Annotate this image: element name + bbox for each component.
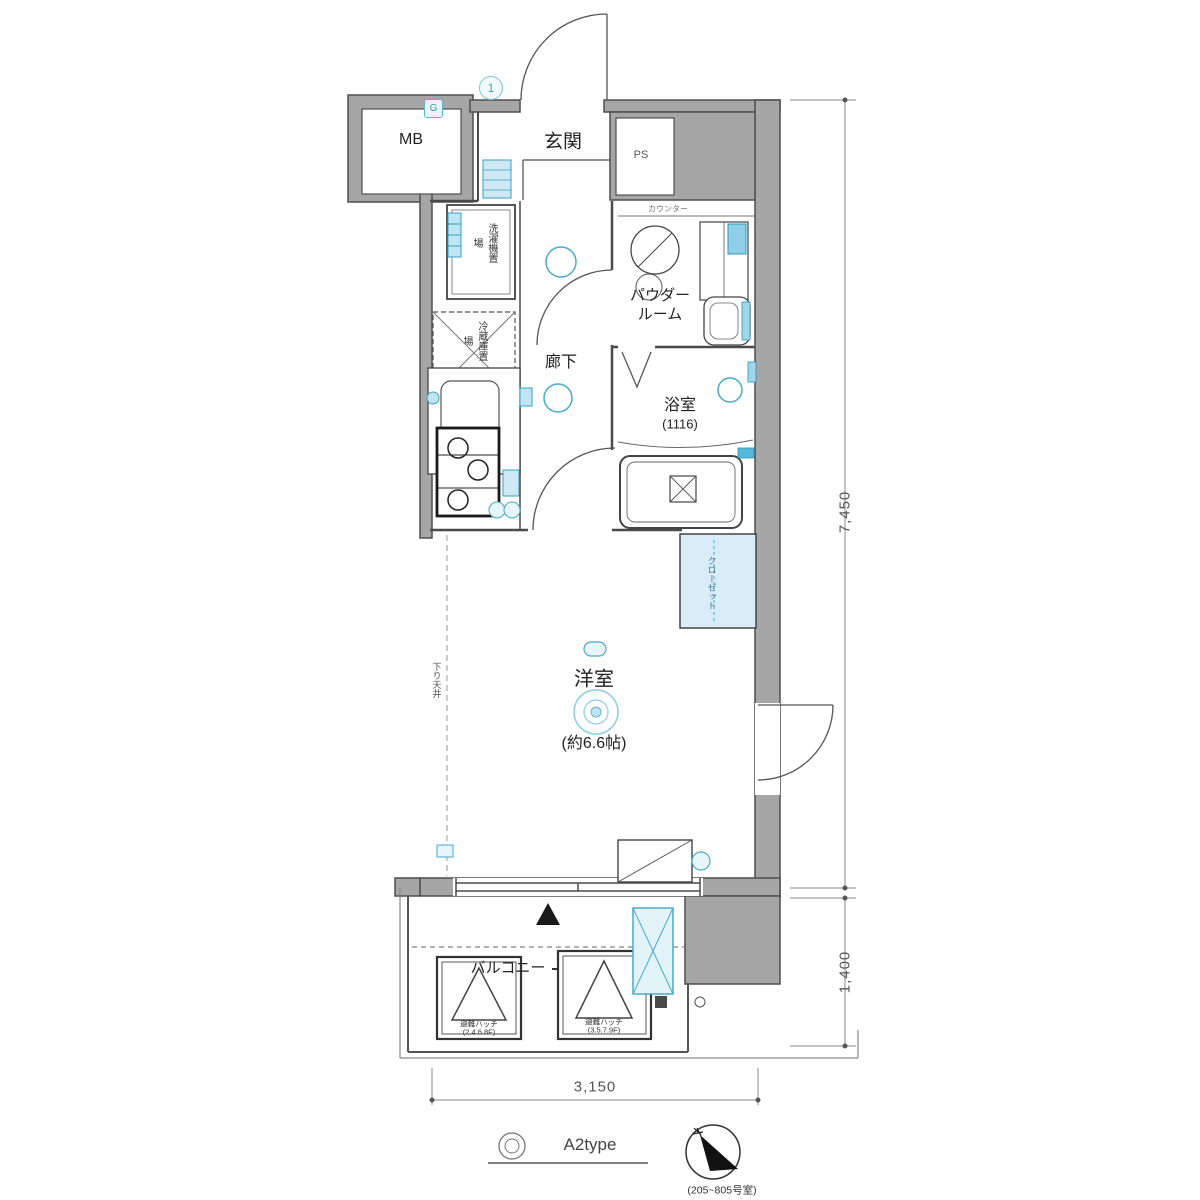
drain-cap <box>695 997 705 1007</box>
room-door-arc <box>533 448 615 530</box>
ceiling-light-icon <box>546 247 576 277</box>
chair-icon <box>692 852 710 870</box>
label-dropped-ceiling: 下り天井 <box>431 650 444 710</box>
label-main-room-size: (約6.6帖) <box>562 729 627 753</box>
downlight-icon <box>489 502 505 518</box>
dim-bottom: 3,150 <box>574 1079 617 1096</box>
downlight-icon <box>504 502 520 518</box>
floor-plan: MB G 1 玄関 PS カウンター パウダー ルーム 廊下 浴室 (1116)… <box>0 0 1200 1200</box>
label-fridge: 冷蔵庫置場 <box>459 320 489 362</box>
label-compass-caption: (205~805号室) <box>687 1183 756 1198</box>
wall-left-stub <box>395 878 420 896</box>
hatch1-floors: (2.4.6.8F) <box>463 1028 496 1037</box>
powder-door-arc <box>537 270 612 345</box>
wall-light-icon <box>584 642 606 656</box>
door-number-marker: 1 <box>479 76 503 100</box>
label-mb: MB <box>399 131 423 149</box>
wall-balcony-right <box>685 896 780 984</box>
label-counter: カウンター <box>648 204 688 215</box>
outlet-icon <box>437 845 453 857</box>
drain-box <box>655 996 667 1008</box>
label-ps: PS <box>634 149 649 161</box>
gas-meter-marker: G <box>424 99 443 118</box>
hatch2-floors: (3.5.7.9F) <box>588 1026 621 1035</box>
mirror-icon <box>728 224 746 254</box>
shower-icon <box>718 378 742 402</box>
faucet-icon <box>427 392 439 404</box>
north-triangle-icon <box>536 903 560 925</box>
label-bathroom-size: (1116) <box>662 417 698 432</box>
label-washer: 洗濯機置場 <box>469 222 499 264</box>
dim-right-lower: 1,400 <box>837 951 854 994</box>
dim-right-upper: 7,450 <box>837 491 854 534</box>
room-mb <box>362 109 461 194</box>
entrance-door-arc <box>521 14 607 100</box>
label-genkan: 玄関 <box>544 127 582 154</box>
main-room-icons <box>437 535 710 882</box>
bathroom-fixtures <box>618 362 756 528</box>
wall-left <box>420 192 432 538</box>
label-closet: クローゼット <box>706 542 719 624</box>
label-powder-room: パウダー ルーム <box>630 286 690 324</box>
type-logo-icon <box>499 1133 525 1159</box>
wall-top-a <box>470 100 520 112</box>
switch-icon <box>520 388 532 406</box>
right-door-gap <box>755 703 780 795</box>
compass-arrow-icon <box>700 1135 738 1171</box>
label-hallway: 廊下 <box>545 348 577 372</box>
shoe-cabinet-icon <box>483 160 511 198</box>
ceiling-light-icon <box>544 384 572 412</box>
powder-room-fixtures <box>618 216 755 345</box>
outlet-icon <box>503 470 519 496</box>
label-type: A2type <box>564 1135 617 1155</box>
bath-folding-door <box>622 352 651 387</box>
label-main-room: 洋室 <box>574 663 614 692</box>
label-balcony: バルコニー <box>471 957 546 978</box>
label-bathroom: 浴室 <box>664 391 696 415</box>
wall-top-b <box>604 100 780 112</box>
